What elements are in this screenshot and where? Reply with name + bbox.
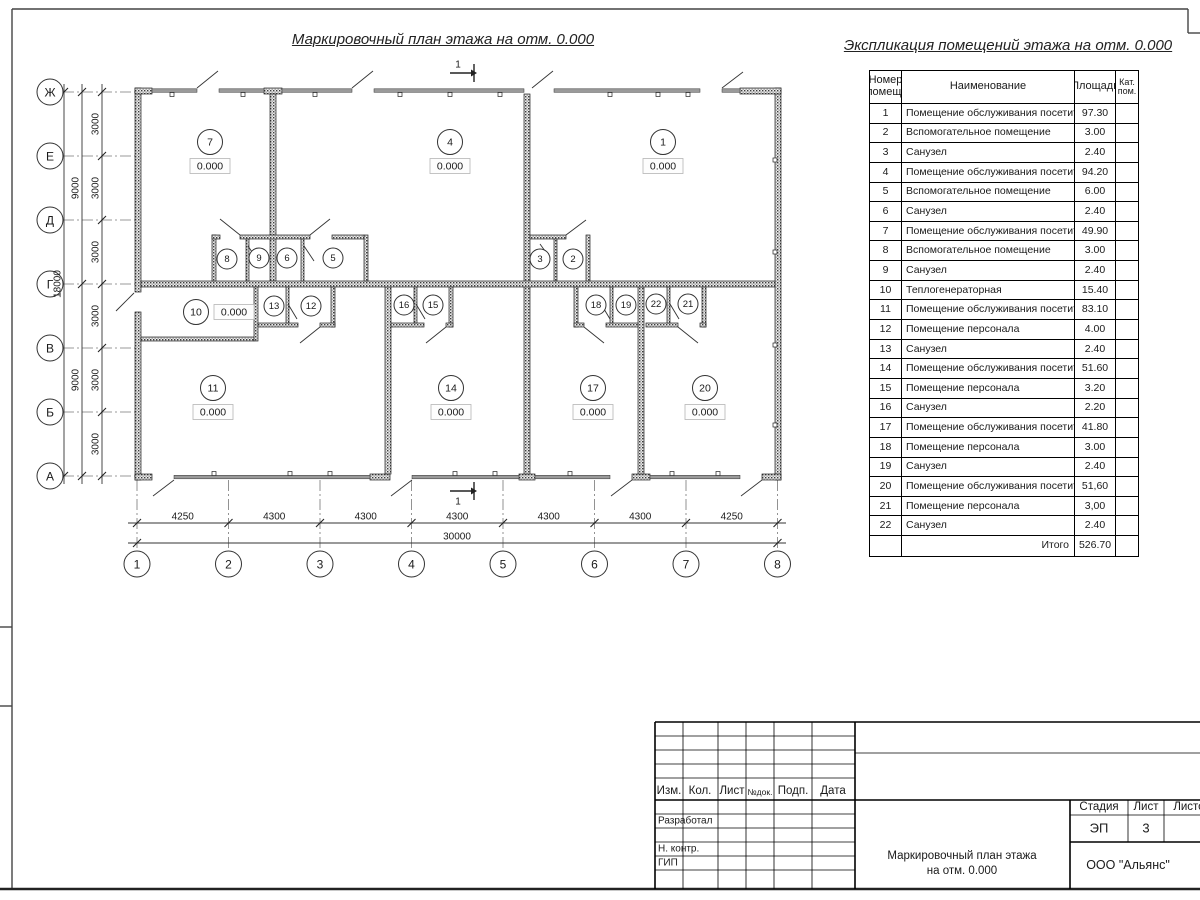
col-header-area: Площадь <box>1075 71 1116 103</box>
cell-room-number: 11 <box>870 300 902 319</box>
cell-room-category <box>1116 261 1138 280</box>
room-bubble-8-label: 8 <box>224 254 229 265</box>
cell-room-area: 15.40 <box>1075 281 1116 300</box>
table-header-row: Номер помещ. Наименование Площадь Кат. п… <box>870 71 1138 104</box>
cell-room-area: 83.10 <box>1075 300 1116 319</box>
col-header-name: Наименование <box>902 71 1075 103</box>
table-row: 13Санузел2.40 <box>870 340 1138 360</box>
cell-room-number: 3 <box>870 143 902 162</box>
axis-row-Е-label: Е <box>46 150 54 164</box>
tb-col-kol: Кол. <box>689 785 712 797</box>
dim-left-3000-4: 3000 <box>91 368 102 391</box>
table-row: 12Помещение персонала4.00 <box>870 320 1138 340</box>
tb-col-izm: Изм. <box>657 785 682 797</box>
room-bubble-17-label: 17 <box>587 383 599 395</box>
cell-room-name: Санузел <box>902 202 1075 221</box>
cell-room-number: 7 <box>870 222 902 241</box>
cell-total-category <box>1116 536 1138 556</box>
tb-role-razrabotal: Разработал <box>658 816 712 827</box>
cell-room-category <box>1116 516 1138 535</box>
table-row: 2Вспомогательное помещение3.00 <box>870 124 1138 144</box>
dim-left-3000-2: 3000 <box>91 240 102 263</box>
room-bubble-13-label: 13 <box>269 301 280 312</box>
tb-col-ndok: №док. <box>748 787 773 797</box>
table-row: 15Помещение персонала3.20 <box>870 379 1138 399</box>
cell-room-area: 2.40 <box>1075 202 1116 221</box>
cell-room-name: Помещение персонала <box>902 497 1075 516</box>
table-row: 10Теплогенераторная15.40 <box>870 281 1138 301</box>
cell-room-name: Помещение персонала <box>902 379 1075 398</box>
room-bubble-22-label: 22 <box>651 299 662 310</box>
cell-room-area: 3.00 <box>1075 124 1116 143</box>
col-header-category: Кат. пом. <box>1116 71 1138 103</box>
cell-room-number: 16 <box>870 399 902 418</box>
cell-room-area: 2.40 <box>1075 458 1116 477</box>
cell-room-area: 3.00 <box>1075 438 1116 457</box>
table-row: 6Санузел2.40 <box>870 202 1138 222</box>
table-body: 1Помещение обслуживания посетителей97.30… <box>870 104 1138 556</box>
room-bubble-9-label: 9 <box>256 253 261 264</box>
cell-room-category <box>1116 379 1138 398</box>
dimension-lines <box>64 84 786 543</box>
cell-room-name: Помещение обслуживания посетителей <box>902 477 1075 496</box>
tb-doc-title-line1: Маркировочный план этажа <box>887 850 1036 862</box>
col-header-number: Номер помещ. <box>870 71 902 103</box>
axis-col-7-label: 7 <box>683 558 690 572</box>
cell-room-number: 5 <box>870 183 902 202</box>
cell-total-label: Итого <box>902 536 1075 556</box>
cell-room-number: 12 <box>870 320 902 339</box>
section-mark-bottom <box>450 482 477 500</box>
plan-title: Маркировочный план этажа на отм. 0.000 <box>292 31 594 48</box>
cell-room-area: 2.40 <box>1075 261 1116 280</box>
room-bubble-6-label: 6 <box>284 253 289 264</box>
explication-title: Экспликация помещений этажа на отм. 0.00… <box>844 37 1172 54</box>
elevation-mark-20-value: 0.000 <box>692 407 718 419</box>
axis-row-Ж-label: Ж <box>44 86 55 100</box>
room-bubble-21-label: 21 <box>683 299 694 310</box>
cell-room-number: 13 <box>870 340 902 359</box>
dim-bottom-0: 4250 <box>172 512 195 523</box>
cell-room-number: 20 <box>870 477 902 496</box>
section-mark-top-label: 1 <box>455 60 461 71</box>
cell-room-name: Вспомогательное помещение <box>902 241 1075 260</box>
axis-col-3-label: 3 <box>317 558 324 572</box>
cell-room-name: Помещение обслуживания посетителей <box>902 222 1075 241</box>
axis-col-2-label: 2 <box>225 558 232 572</box>
table-row: 9Санузел2.40 <box>870 261 1138 281</box>
cell-room-area: 51.60 <box>1075 359 1116 378</box>
cell-room-name: Помещение обслуживания посетителей <box>902 300 1075 319</box>
table-row: 8Вспомогательное помещение3.00 <box>870 241 1138 261</box>
room-bubble-19-label: 19 <box>621 300 632 311</box>
cell-room-category <box>1116 183 1138 202</box>
dim-bottom-4: 4300 <box>538 512 561 523</box>
cell-room-category <box>1116 359 1138 378</box>
dim-total-bottom: 30000 <box>443 532 471 543</box>
cell-room-name: Вспомогательное помещение <box>902 124 1075 143</box>
room-bubble-3-label: 3 <box>537 254 542 265</box>
cell-room-category <box>1116 241 1138 260</box>
cell-room-number: 8 <box>870 241 902 260</box>
table-row: 7Помещение обслуживания посетителей49.90 <box>870 222 1138 242</box>
cell-room-area: 97.30 <box>1075 104 1116 123</box>
dim-bottom-2: 4300 <box>355 512 378 523</box>
cell-room-name: Санузел <box>902 261 1075 280</box>
room-bubble-15-label: 15 <box>428 300 439 311</box>
cell-room-category <box>1116 497 1138 516</box>
cell-room-name: Помещение персонала <box>902 320 1075 339</box>
cell-room-category <box>1116 300 1138 319</box>
dim-bottom-1: 4300 <box>263 512 286 523</box>
cell-room-number: 10 <box>870 281 902 300</box>
room-bubble-14-label: 14 <box>445 383 457 395</box>
dim-bottom-5: 4300 <box>629 512 652 523</box>
section-mark-top <box>450 64 477 82</box>
table-row: 16Санузел2.20 <box>870 399 1138 419</box>
cell-room-name: Помещение персонала <box>902 438 1075 457</box>
cell-room-number: 1 <box>870 104 902 123</box>
cell-room-number: 17 <box>870 418 902 437</box>
cell-room-category <box>1116 222 1138 241</box>
table-row: 1Помещение обслуживания посетителей97.30 <box>870 104 1138 124</box>
elevation-mark-4-value: 0.000 <box>437 161 463 173</box>
axis-col-6-label: 6 <box>591 558 598 572</box>
table-row: 19Санузел2.40 <box>870 458 1138 478</box>
dim-left-3000-0: 3000 <box>91 112 102 135</box>
elevation-mark-11-value: 0.000 <box>200 407 226 419</box>
tb-col-data: Дата <box>820 785 845 797</box>
table-row: 21Помещение персонала3,00 <box>870 497 1138 517</box>
cell-room-name: Помещение обслуживания посетителей <box>902 104 1075 123</box>
table-row: 17Помещение обслуживания посетителей41.8… <box>870 418 1138 438</box>
room-bubble-18-label: 18 <box>591 300 602 311</box>
cell-room-number: 18 <box>870 438 902 457</box>
table-row: 4Помещение обслуживания посетителей94.20 <box>870 163 1138 183</box>
table-row: 18Помещение персонала3.00 <box>870 438 1138 458</box>
cell-room-area: 6.00 <box>1075 183 1116 202</box>
tb-role-nkontr: Н. контр. <box>658 844 699 855</box>
elevation-mark-17-value: 0.000 <box>580 407 606 419</box>
tb-doc-title-line2: на отм. 0.000 <box>927 865 997 877</box>
cell-room-name: Санузел <box>902 340 1075 359</box>
room-bubble-7-label: 7 <box>207 137 213 149</box>
tb-role-gip: ГИП <box>658 858 678 869</box>
room-bubble-10-label: 10 <box>190 307 202 319</box>
drawing-sheet: { "page": { "plan_title": "Маркировочный… <box>0 0 1200 900</box>
cell-room-area: 2.40 <box>1075 340 1116 359</box>
cell-room-number: 22 <box>870 516 902 535</box>
cell-room-category <box>1116 438 1138 457</box>
table-row: 11Помещение обслуживания посетителей83.1… <box>870 300 1138 320</box>
elevation-mark-1-value: 0.000 <box>650 161 676 173</box>
dim-bottom-6: 4250 <box>721 512 744 523</box>
explication-table: Номер помещ. Наименование Площадь Кат. п… <box>869 70 1139 557</box>
cell-room-category <box>1116 340 1138 359</box>
table-total-row: Итого526.70 <box>870 536 1138 556</box>
tb-company: ООО "Альянс" <box>1086 858 1170 872</box>
cell-room-area: 3,00 <box>1075 497 1116 516</box>
cell-room-category <box>1116 281 1138 300</box>
cell-room-number: 6 <box>870 202 902 221</box>
cell-room-number: 2 <box>870 124 902 143</box>
room-bubble-12-label: 12 <box>306 301 317 312</box>
room-bubble-4-label: 4 <box>447 137 453 149</box>
cell-room-number: 4 <box>870 163 902 182</box>
cell-room-area: 2.40 <box>1075 516 1116 535</box>
axis-col-8-label: 8 <box>774 558 781 572</box>
cell-room-name: Санузел <box>902 399 1075 418</box>
elevation-mark-10-value: 0.000 <box>221 307 247 319</box>
cell-room-area: 51,60 <box>1075 477 1116 496</box>
cell-room-name: Помещение обслуживания посетителей <box>902 418 1075 437</box>
axis-col-5-label: 5 <box>500 558 507 572</box>
tb-sheets-label: Листов <box>1173 801 1200 813</box>
room-bubble-1-label: 1 <box>660 137 666 149</box>
cell-total-value: 526.70 <box>1075 536 1116 556</box>
cell-room-category <box>1116 124 1138 143</box>
table-row: 5Вспомогательное помещение6.00 <box>870 183 1138 203</box>
cell-room-category <box>1116 202 1138 221</box>
cell-room-name: Помещение обслуживания посетителей <box>902 359 1075 378</box>
cell-room-category <box>1116 418 1138 437</box>
cell-room-name: Санузел <box>902 143 1075 162</box>
table-row: 3Санузел2.40 <box>870 143 1138 163</box>
cell-room-number: 15 <box>870 379 902 398</box>
cell-room-number: 9 <box>870 261 902 280</box>
dim-left-3000-1: 3000 <box>91 176 102 199</box>
cell-room-area: 2.40 <box>1075 143 1116 162</box>
axis-row-Б-label: Б <box>46 406 54 420</box>
cell-total-empty <box>870 536 902 556</box>
cell-room-category <box>1116 477 1138 496</box>
table-row: 22Санузел2.40 <box>870 516 1138 536</box>
cell-room-area: 2.20 <box>1075 399 1116 418</box>
dim-left-3000-5: 3000 <box>91 432 102 455</box>
cell-room-name: Теплогенераторная <box>902 281 1075 300</box>
cell-room-category <box>1116 163 1138 182</box>
tb-sheet-label: Лист <box>1134 801 1159 813</box>
cell-room-name: Помещение обслуживания посетителей <box>902 163 1075 182</box>
elevation-mark-14-value: 0.000 <box>438 407 464 419</box>
tb-stage-label: Стадия <box>1079 801 1118 813</box>
cell-room-category <box>1116 320 1138 339</box>
cell-room-category <box>1116 104 1138 123</box>
axis-col-4-label: 4 <box>408 558 415 572</box>
cell-room-category <box>1116 458 1138 477</box>
cell-room-number: 21 <box>870 497 902 516</box>
room-bubble-5-label: 5 <box>330 253 335 264</box>
dim-left-3000-3: 3000 <box>91 304 102 327</box>
cell-room-area: 3.20 <box>1075 379 1116 398</box>
room-bubble-16-label: 16 <box>399 300 410 311</box>
dim-left-9000-1: 9000 <box>71 368 82 391</box>
axis-col-1-label: 1 <box>134 558 141 572</box>
cell-room-name: Санузел <box>902 516 1075 535</box>
dim-left-9000-0: 9000 <box>71 176 82 199</box>
axis-row-В-label: В <box>46 342 54 356</box>
table-row: 20Помещение обслуживания посетителей51,6… <box>870 477 1138 497</box>
room-bubble-2-label: 2 <box>570 254 575 265</box>
table-row: 14Помещение обслуживания посетителей51.6… <box>870 359 1138 379</box>
cell-room-area: 49.90 <box>1075 222 1116 241</box>
elevation-mark-7-value: 0.000 <box>197 161 223 173</box>
room-bubble-11-label: 11 <box>208 383 219 395</box>
dim-bottom-3: 4300 <box>446 512 469 523</box>
cell-room-area: 3.00 <box>1075 241 1116 260</box>
dim-left-18000: 18000 <box>53 270 64 298</box>
cell-room-name: Вспомогательное помещение <box>902 183 1075 202</box>
cell-room-category <box>1116 143 1138 162</box>
cell-room-area: 41.80 <box>1075 418 1116 437</box>
tb-col-list: Лист <box>720 785 745 797</box>
cell-room-area: 94.20 <box>1075 163 1116 182</box>
cell-room-area: 4.00 <box>1075 320 1116 339</box>
tb-col-podp: Подп. <box>778 785 809 797</box>
cell-room-category <box>1116 399 1138 418</box>
axis-row-А-label: А <box>46 470 54 484</box>
section-mark-bottom-label: 1 <box>455 497 461 508</box>
tb-sheet-value: 3 <box>1142 821 1149 836</box>
axis-row-Д-label: Д <box>46 214 54 228</box>
cell-room-number: 14 <box>870 359 902 378</box>
tb-stage-value: ЭП <box>1090 821 1109 836</box>
cell-room-name: Санузел <box>902 458 1075 477</box>
cell-room-number: 19 <box>870 458 902 477</box>
room-bubble-20-label: 20 <box>699 383 711 395</box>
